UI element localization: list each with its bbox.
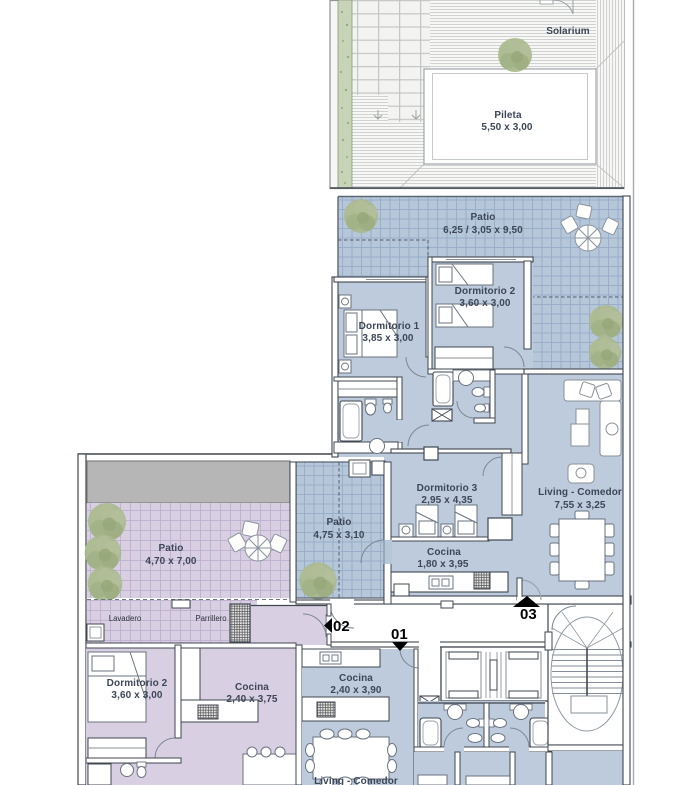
svg-text:Cocina: Cocina bbox=[339, 673, 373, 684]
svg-text:1,80 x 3,95: 1,80 x 3,95 bbox=[417, 559, 468, 570]
svg-text:4,70 x 7,00: 4,70 x 7,00 bbox=[145, 556, 196, 567]
svg-text:5,50 x 3,00: 5,50 x 3,00 bbox=[481, 122, 532, 133]
svg-text:Living - Comedor: Living - Comedor bbox=[538, 487, 622, 498]
svg-text:3,85 x 3,00: 3,85 x 3,00 bbox=[362, 333, 413, 344]
svg-text:01: 01 bbox=[391, 626, 408, 643]
svg-text:Dormitorio 2: Dormitorio 2 bbox=[107, 678, 168, 689]
svg-text:Cocina: Cocina bbox=[235, 682, 269, 693]
svg-text:4,75 x 3,10: 4,75 x 3,10 bbox=[313, 530, 364, 541]
svg-text:Cocina: Cocina bbox=[427, 547, 461, 558]
svg-text:Dormitorio 2: Dormitorio 2 bbox=[455, 286, 516, 297]
svg-text:Patio: Patio bbox=[471, 212, 496, 223]
svg-text:Patio: Patio bbox=[159, 543, 184, 554]
svg-text:2,40 x 3,75: 2,40 x 3,75 bbox=[226, 694, 277, 705]
svg-text:3,60 x 3,00: 3,60 x 3,00 bbox=[459, 298, 510, 309]
svg-text:03: 03 bbox=[520, 606, 537, 623]
svg-text:Parrillero: Parrillero bbox=[195, 614, 227, 623]
svg-text:Living - Comedor: Living - Comedor bbox=[314, 776, 398, 785]
svg-text:2,40 x 3,90: 2,40 x 3,90 bbox=[330, 685, 381, 696]
svg-text:Patio: Patio bbox=[327, 517, 352, 528]
svg-text:02: 02 bbox=[333, 618, 350, 635]
svg-text:Pileta: Pileta bbox=[494, 110, 522, 121]
svg-text:Dormitorio 3: Dormitorio 3 bbox=[417, 483, 478, 494]
svg-text:6,25 / 3,05 x 9,50: 6,25 / 3,05 x 9,50 bbox=[443, 225, 523, 236]
svg-text:3,60 x 3,00: 3,60 x 3,00 bbox=[111, 690, 162, 701]
svg-text:2,95 x 4,35: 2,95 x 4,35 bbox=[421, 495, 472, 506]
svg-text:Lavadero: Lavadero bbox=[109, 614, 142, 623]
svg-text:7,55 x 3,25: 7,55 x 3,25 bbox=[554, 500, 605, 511]
svg-text:Solarium: Solarium bbox=[546, 26, 590, 37]
svg-text:Dormitorio 1: Dormitorio 1 bbox=[359, 321, 420, 332]
